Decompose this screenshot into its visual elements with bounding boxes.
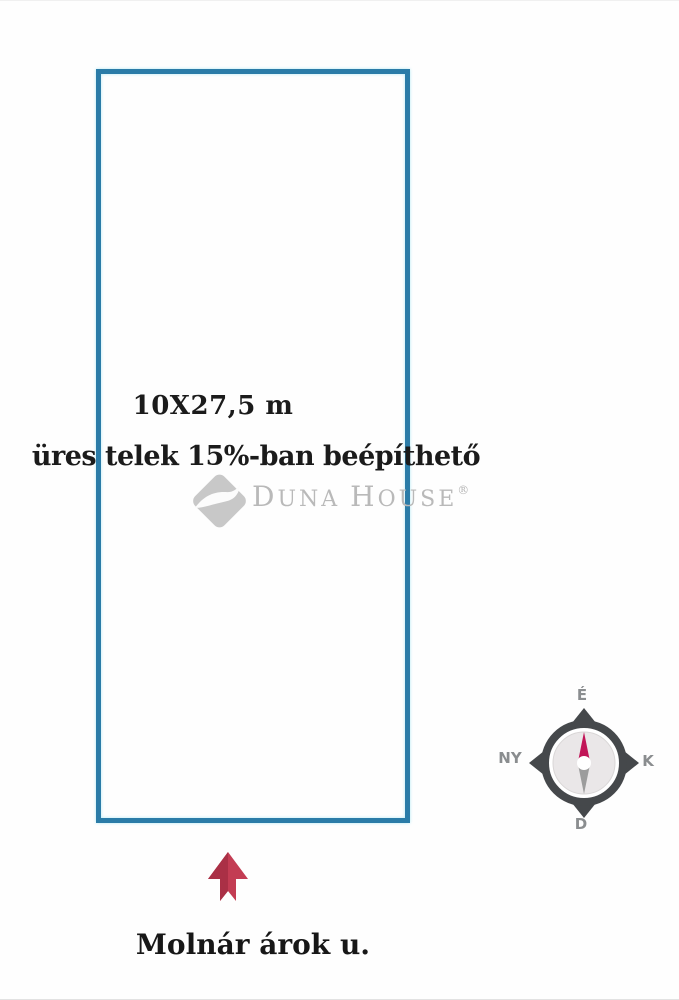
duna-house-logo-icon: [190, 471, 249, 531]
brand-letters: UNA: [277, 487, 340, 512]
arrow-shaded-side: [208, 852, 228, 901]
street-direction-arrow-icon: [206, 851, 250, 903]
brand-letter: D: [252, 480, 277, 513]
compass-icon: [529, 708, 639, 818]
brand-letters: OUSE: [378, 487, 458, 512]
registered-trademark-icon: ®: [457, 483, 469, 497]
brand-letter: H: [350, 480, 377, 513]
compass-north-label: É: [570, 688, 594, 703]
watermark-brand-text: DUNA HOUSE®: [252, 483, 469, 511]
compass-east-label: K: [636, 754, 660, 769]
plot-dimensions-label: 10X27,5 m: [0, 391, 426, 421]
plot-zoning-label: üres telek 15%-ban beépíthető: [0, 441, 512, 472]
street-name-label: Molnár árok u.: [96, 928, 410, 961]
compass-rose: É NY K D: [495, 683, 665, 838]
compass-west-label: NY: [496, 751, 524, 766]
site-plan: 10X27,5 m üres telek 15%-ban beépíthető …: [0, 0, 679, 1000]
compass-south-label: D: [569, 817, 593, 832]
compass-needle-hub: [577, 756, 591, 770]
